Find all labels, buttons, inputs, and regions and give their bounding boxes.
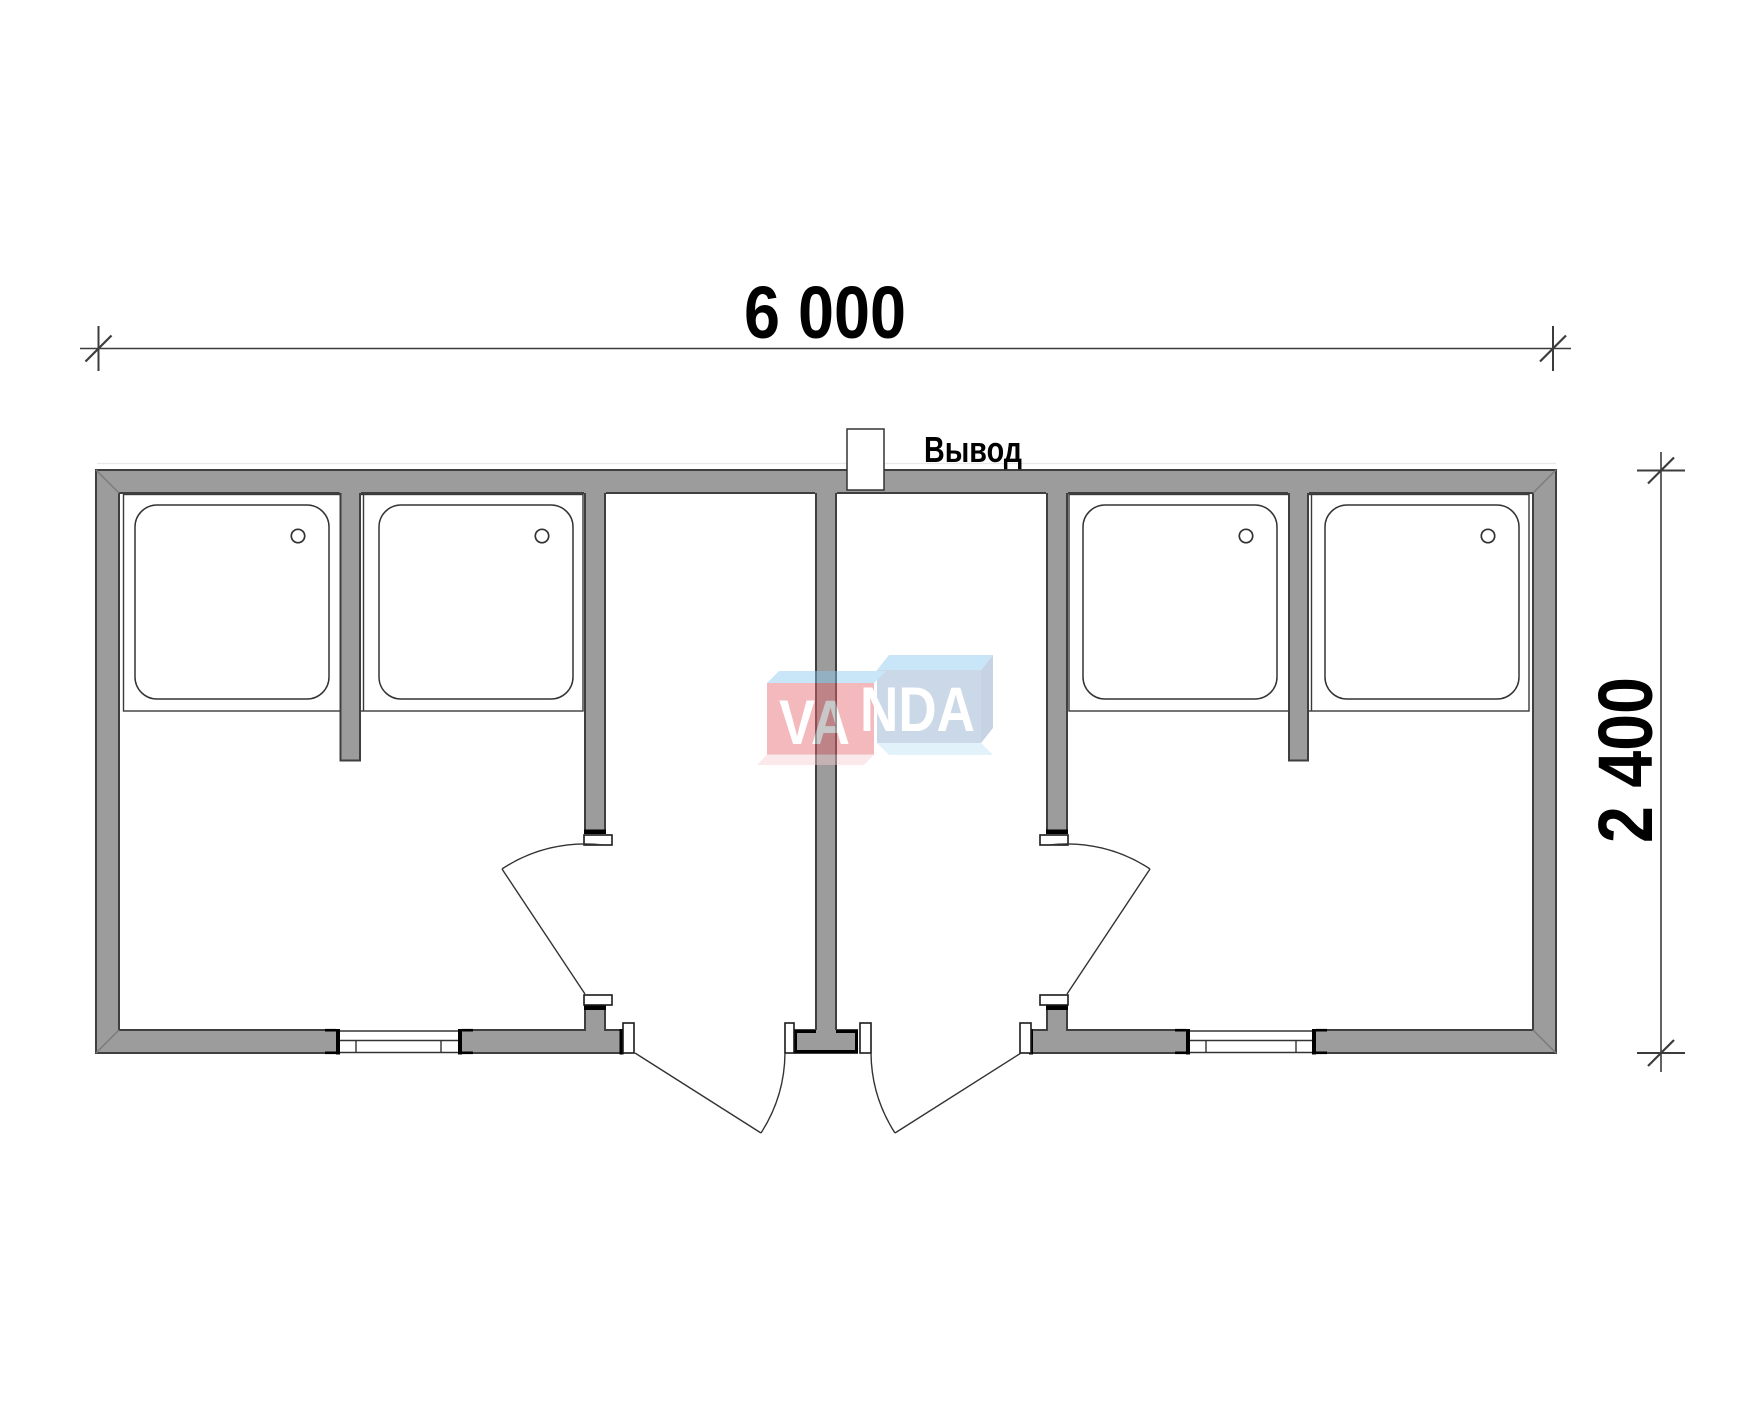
svg-text:Вывод: Вывод xyxy=(924,429,1022,470)
svg-text:NDA: NDA xyxy=(860,675,975,745)
svg-text:VA: VA xyxy=(779,688,850,758)
svg-text:6 000: 6 000 xyxy=(744,271,906,354)
svg-text:2 400: 2 400 xyxy=(1583,677,1669,843)
